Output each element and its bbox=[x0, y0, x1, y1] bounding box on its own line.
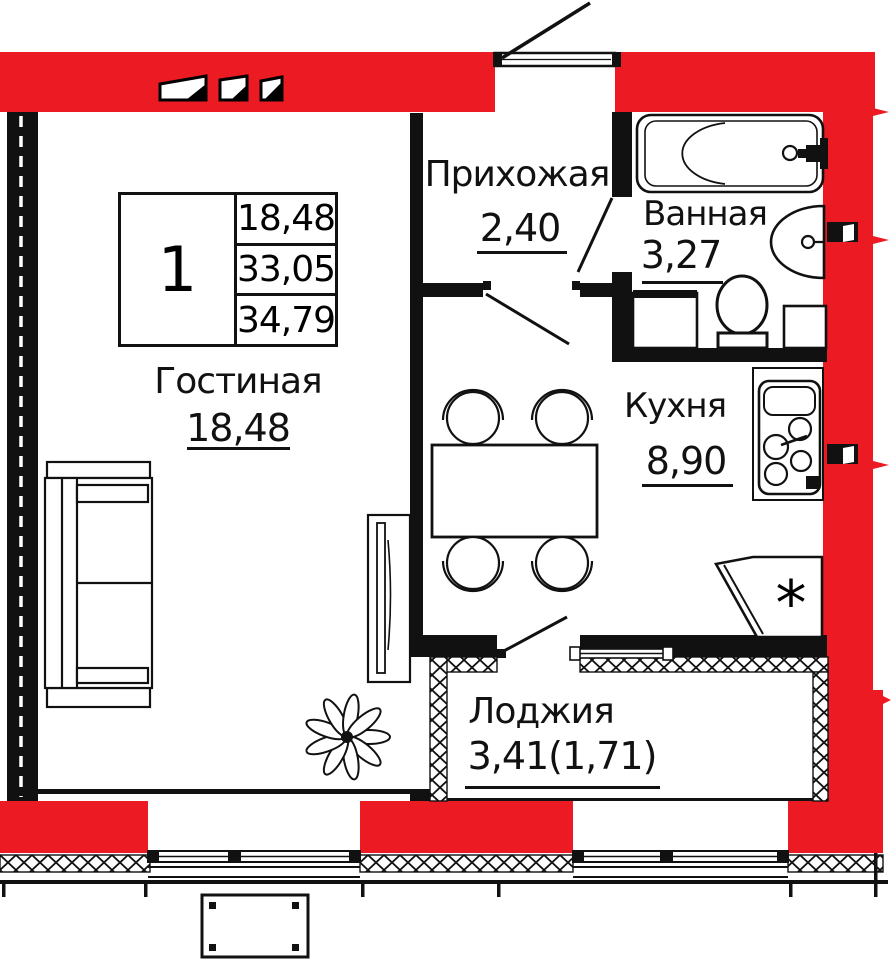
room-area-living: 18,48 bbox=[186, 406, 290, 450]
room-area-bath: 3,27 bbox=[641, 233, 722, 277]
kitchen-window bbox=[570, 647, 673, 660]
tv-unit bbox=[368, 515, 410, 682]
entrance-door bbox=[493, 3, 621, 67]
area-underline bbox=[642, 484, 733, 487]
logo-windows-icon bbox=[160, 76, 282, 100]
wall-living-kitchen bbox=[410, 113, 423, 643]
red-bottom-right bbox=[788, 801, 883, 853]
balcony-door-leaf bbox=[502, 617, 567, 652]
door-frame-tick bbox=[497, 649, 506, 658]
bathtub bbox=[637, 115, 828, 192]
red-top-band-right bbox=[615, 52, 875, 112]
dining-table bbox=[432, 445, 597, 537]
plant-icon bbox=[304, 693, 390, 780]
area-underline bbox=[477, 251, 567, 254]
fridge-star-symbol: * bbox=[776, 573, 807, 635]
kitchen-counter-sink-stove bbox=[753, 368, 823, 500]
loggia-left-wall bbox=[430, 657, 447, 801]
wall-bath-bottom bbox=[612, 348, 827, 362]
area-underline bbox=[465, 786, 660, 789]
legend-rooms-count: 1 bbox=[121, 195, 237, 344]
wall-hall-stub-right bbox=[580, 283, 614, 297]
section-mark-icon bbox=[883, 696, 891, 704]
room-label-living: Гостиная bbox=[154, 361, 321, 402]
hall-kitchen-door-leaf bbox=[486, 294, 569, 344]
bathroom-cabinet bbox=[784, 306, 826, 348]
facade-hatch bbox=[0, 855, 150, 872]
red-bottom-left bbox=[0, 801, 148, 853]
door-leaf bbox=[502, 3, 590, 58]
facade-hatch bbox=[788, 855, 883, 872]
hatch-strip bbox=[580, 657, 828, 672]
door-frame-tick bbox=[612, 52, 621, 67]
area-underline bbox=[187, 447, 290, 450]
room-area-kitchen: 8,90 bbox=[646, 439, 727, 483]
wall-living-bottom-face bbox=[38, 789, 423, 794]
room-area-hall: 2,40 bbox=[480, 206, 561, 250]
section-mark-icon bbox=[873, 108, 889, 116]
plan-drawing bbox=[0, 0, 891, 960]
bathroom-door-leaf bbox=[578, 198, 612, 272]
legend-area-full: 34,79 bbox=[237, 296, 335, 344]
facade-hatch bbox=[360, 855, 573, 872]
floor-plan: 1 18,48 33,05 34,79 Гостиная 18,48 Прихо… bbox=[0, 0, 891, 960]
legend-area-total: 33,05 bbox=[237, 246, 335, 297]
room-area-loggia: 3,41(1,71) bbox=[468, 734, 657, 778]
wall-kitchen-window-head bbox=[580, 635, 673, 650]
red-bottom-mid bbox=[360, 801, 573, 853]
room-label-kitchen: Кухня bbox=[624, 386, 726, 426]
wall-hall-stub-left bbox=[423, 283, 483, 297]
door-frame-tick bbox=[493, 52, 502, 67]
red-right-wall-lower bbox=[823, 690, 883, 801]
washing-machine bbox=[633, 290, 697, 348]
red-right-wall-upper bbox=[823, 112, 873, 690]
room-label-bath: Ванная bbox=[643, 194, 767, 234]
toilet bbox=[717, 276, 767, 348]
wall-kitchen-bottom-left bbox=[410, 635, 497, 657]
loggia-floor-line bbox=[447, 798, 813, 801]
room-label-hall: Прихожая bbox=[425, 154, 610, 195]
room-label-loggia: Лоджия bbox=[468, 691, 613, 732]
bathroom-sink bbox=[771, 206, 824, 278]
door-frame-tick bbox=[483, 281, 491, 290]
loggia-right-wall bbox=[813, 672, 828, 801]
door-frame-tick bbox=[572, 281, 580, 290]
section-mark-icon bbox=[873, 236, 889, 244]
sofa bbox=[45, 462, 152, 707]
apartment-legend: 1 18,48 33,05 34,79 bbox=[118, 192, 338, 347]
legend-area-living: 18,48 bbox=[237, 195, 335, 246]
wall-bath-left-upper bbox=[612, 112, 632, 197]
section-mark-icon bbox=[873, 461, 889, 469]
area-underline bbox=[642, 281, 723, 284]
balcony-below-outline bbox=[202, 895, 308, 957]
